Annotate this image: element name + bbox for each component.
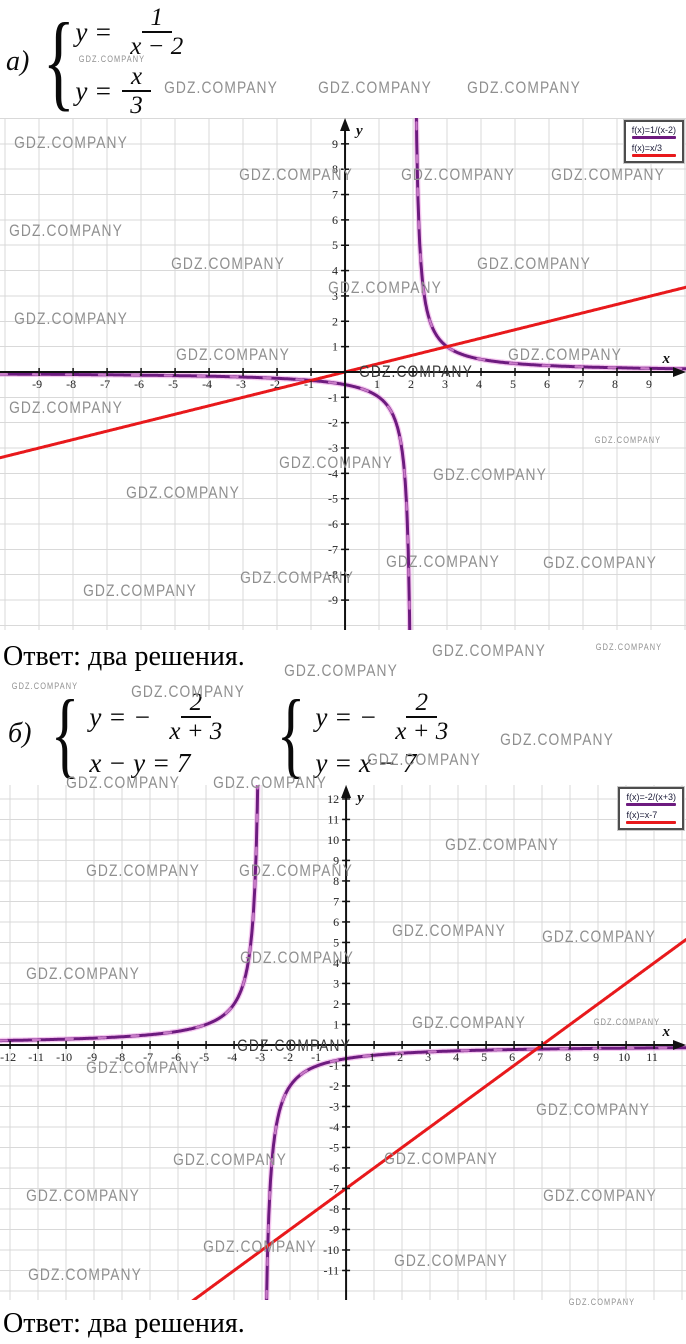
numerator: x: [122, 63, 151, 92]
legend-label: f(x)=-2/(x+3): [626, 792, 676, 802]
graph-b-canvas: xy-12-11-10-9-8-7-6-5-4-3-2-112345678910…: [0, 785, 686, 1300]
legend-item: f(x)=x-7: [626, 810, 676, 824]
equation-b1-2: x − y = 7: [89, 748, 231, 779]
y-tick-label: 1: [332, 340, 338, 354]
y-tick-label: -9: [328, 593, 338, 607]
legend-color-line: [626, 821, 676, 824]
y-tick-label: -1: [328, 390, 338, 404]
curve-0: [0, 785, 686, 1300]
curve-1: [0, 940, 686, 1300]
fraction: 1 x − 2: [121, 4, 192, 60]
numerator: 2: [181, 689, 212, 718]
x-tick-label: -6: [134, 377, 144, 391]
y-tick-label: -8: [329, 1202, 339, 1216]
x-tick-label: -5: [168, 377, 178, 391]
y-tick-label: -3: [328, 441, 338, 455]
y-tick-label: 2: [333, 997, 339, 1011]
y-tick-label: -10: [323, 1243, 339, 1257]
y-axis-arrow: [340, 118, 350, 131]
x-tick-label: 2: [397, 1050, 403, 1064]
x-tick-label: -6: [171, 1050, 181, 1064]
legend-color-line: [626, 803, 676, 806]
equation-a2-lhs: y =: [75, 76, 112, 107]
denominator: x + 3: [160, 718, 231, 745]
legend-label: f(x)=1/(x-2): [632, 125, 676, 135]
y-tick-label: 10: [327, 833, 339, 847]
curve-dash-0: [0, 785, 686, 1300]
equation-a1: y = 1 x − 2: [75, 4, 192, 60]
y-tick-label: -1: [329, 1058, 339, 1072]
x-tick-label: -7: [143, 1050, 153, 1064]
x-tick-label: -4: [227, 1050, 237, 1064]
y-tick-label: -3: [329, 1099, 339, 1113]
y-tick-label: -4: [329, 1120, 339, 1134]
legend-label: f(x)=x-7: [626, 810, 676, 820]
y-axis-label: y: [354, 123, 363, 139]
graph-a: xy-9-8-7-6-5-4-3-2-1123456789-9-8-7-6-5-…: [0, 118, 686, 630]
x-tick-label: 1: [369, 1050, 375, 1064]
system-a-equations: y = 1 x − 2 y = x 3: [75, 4, 192, 119]
x-tick-label: 5: [481, 1050, 487, 1064]
y-tick-label: 3: [333, 976, 339, 990]
y-tick-label: 11: [328, 812, 340, 826]
y-tick-label: 6: [333, 915, 339, 929]
x-tick-label: 1: [374, 377, 380, 391]
x-tick-label: 6: [544, 377, 550, 391]
system-b1-brace: {: [51, 688, 70, 780]
fraction: 2 x + 3: [386, 689, 457, 745]
system-b2-brace: {: [277, 688, 296, 780]
watermark: GDZ.COMPANY: [318, 78, 432, 97]
system-a-brace: {: [43, 10, 62, 114]
denominator: 3: [121, 92, 152, 119]
y-tick-label: -5: [328, 492, 338, 506]
equation-b1-1-lhs: y = −: [89, 702, 151, 733]
x-tick-label: -8: [66, 377, 76, 391]
part-b-block: б) { y = − 2 x + 3 x − y = 7 { y = − 2 x…: [8, 688, 457, 780]
answer-b: Ответ: два решения.: [3, 1308, 245, 1340]
y-axis-label: y: [355, 790, 364, 806]
y-tick-label: 8: [333, 874, 339, 888]
page: а) { y = 1 x − 2 y = x 3 xy-9-8-7-6-5-4-…: [0, 0, 686, 1344]
x-tick-label: -5: [199, 1050, 209, 1064]
x-tick-label: 8: [612, 377, 618, 391]
x-tick-label: -10: [56, 1050, 72, 1064]
x-tick-label: 7: [537, 1050, 543, 1064]
equation-b2-2: y = x − 7: [315, 748, 457, 779]
part-a-label: а): [6, 46, 29, 78]
watermark: GDZ.COMPANY: [500, 730, 614, 749]
answer-a: Ответ: два решения.: [3, 641, 245, 673]
fraction: 2 x + 3: [160, 689, 231, 745]
equation-b1-1: y = − 2 x + 3: [89, 689, 231, 745]
y-tick-label: 7: [333, 894, 339, 908]
part-b-label: б): [8, 718, 31, 750]
x-tick-label: 3: [425, 1050, 431, 1064]
y-axis-arrow: [341, 785, 351, 798]
x-tick-label: 3: [442, 377, 448, 391]
x-tick-label: -1: [304, 377, 314, 391]
graph-b: xy-12-11-10-9-8-7-6-5-4-3-2-112345678910…: [0, 785, 686, 1300]
system-b2-equations: y = − 2 x + 3 y = x − 7: [315, 689, 457, 779]
y-tick-label: 2: [332, 314, 338, 328]
legend-item: f(x)=-2/(x+3): [626, 792, 676, 806]
legend-item: f(x)=x/3: [632, 143, 676, 157]
watermark: GDZ.COMPANY: [596, 642, 662, 652]
x-tick-label: -11: [28, 1050, 44, 1064]
y-tick-label: 8: [332, 162, 338, 176]
numerator: 1: [142, 4, 173, 33]
y-tick-label: 12: [327, 792, 339, 806]
legend-item: f(x)=1/(x-2): [632, 125, 676, 139]
equation-a2: y = x 3: [75, 63, 192, 119]
x-tick-label: 5: [510, 377, 516, 391]
x-tick-label: 6: [509, 1050, 515, 1064]
x-tick-label: -4: [202, 377, 212, 391]
y-tick-label: -2: [329, 1079, 339, 1093]
x-tick-label: -3: [255, 1050, 265, 1064]
fraction: x 3: [121, 63, 152, 119]
graph-a-canvas: xy-9-8-7-6-5-4-3-2-1123456789-9-8-7-6-5-…: [0, 118, 686, 630]
legend-color-line: [632, 136, 676, 139]
x-tick-label: -2: [283, 1050, 293, 1064]
legend-label: f(x)=x/3: [632, 143, 676, 153]
y-tick-label: 3: [332, 289, 338, 303]
system-a: а) { y = 1 x − 2 y = x 3: [6, 4, 192, 119]
x-tick-label: 7: [578, 377, 584, 391]
system-b1-equations: y = − 2 x + 3 x − y = 7: [89, 689, 231, 779]
y-tick-label: 5: [332, 238, 338, 252]
x-tick-label: 4: [476, 377, 482, 391]
x-tick-label: 2: [408, 377, 414, 391]
x-tick-label: 8: [565, 1050, 571, 1064]
y-tick-label: -4: [328, 466, 338, 480]
watermark: GDZ.COMPANY: [284, 661, 398, 680]
numerator: 2: [406, 689, 437, 718]
x-tick-label: 9: [593, 1050, 599, 1064]
x-tick-label: -9: [87, 1050, 97, 1064]
watermark: GDZ.COMPANY: [467, 78, 581, 97]
y-tick-label: -6: [329, 1161, 339, 1175]
x-tick-label: -9: [32, 377, 42, 391]
curve-glow-0: [0, 785, 686, 1300]
y-tick-label: -6: [328, 517, 338, 531]
equation-a1-lhs: y =: [75, 17, 112, 48]
y-tick-label: -8: [328, 568, 338, 582]
x-tick-label: -8: [115, 1050, 125, 1064]
x-axis-label: x: [662, 1024, 671, 1040]
y-tick-label: 5: [333, 935, 339, 949]
y-tick-label: 9: [333, 853, 339, 867]
x-tick-label: -12: [0, 1050, 16, 1064]
x-tick-label: 9: [646, 377, 652, 391]
x-tick-label: -3: [236, 377, 246, 391]
y-tick-label: -7: [329, 1181, 339, 1195]
watermark: GDZ.COMPANY: [432, 641, 546, 660]
denominator: x + 3: [386, 718, 457, 745]
legend: f(x)=1/(x-2) f(x)=x/3: [624, 120, 684, 163]
x-tick-label: 11: [646, 1050, 658, 1064]
x-axis-label: x: [662, 351, 671, 367]
y-tick-label: -9: [329, 1222, 339, 1236]
legend-color-line: [632, 154, 676, 157]
legend: f(x)=-2/(x+3) f(x)=x-7: [618, 787, 684, 830]
x-tick-label: -1: [311, 1050, 321, 1064]
denominator: x − 2: [121, 33, 192, 60]
equation-b2-1-lhs: y = −: [315, 702, 377, 733]
x-tick-label: 4: [453, 1050, 459, 1064]
y-tick-label: 9: [332, 137, 338, 151]
y-tick-label: 4: [333, 956, 339, 970]
y-tick-label: -11: [324, 1263, 340, 1277]
x-tick-label: 10: [618, 1050, 630, 1064]
y-tick-label: 1: [333, 1017, 339, 1031]
y-tick-label: -7: [328, 542, 338, 556]
equation-b2-1: y = − 2 x + 3: [315, 689, 457, 745]
y-tick-label: 7: [332, 188, 338, 202]
x-tick-label: -7: [100, 377, 110, 391]
x-tick-label: -2: [270, 377, 280, 391]
y-tick-label: -5: [329, 1140, 339, 1154]
y-tick-label: -2: [328, 416, 338, 430]
y-tick-label: 4: [332, 264, 338, 278]
y-tick-label: 6: [332, 213, 338, 227]
